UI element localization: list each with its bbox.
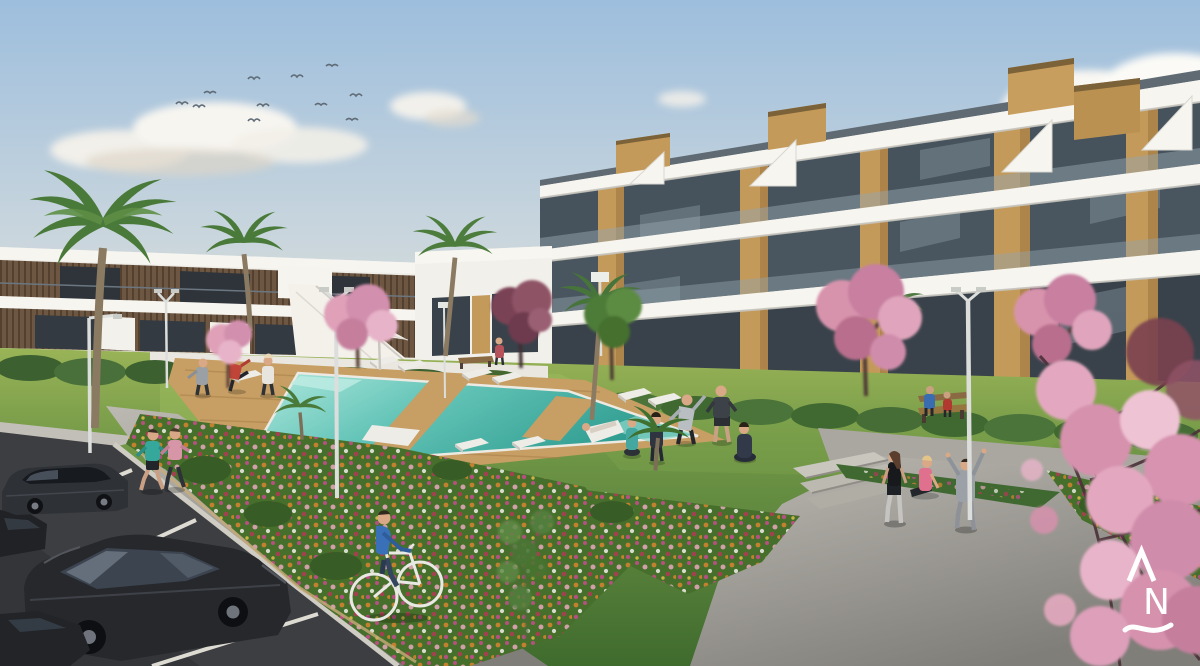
- cloud-tiny: [658, 91, 706, 107]
- logo-letter: N: [1143, 582, 1170, 623]
- render-image: N: [0, 0, 1200, 666]
- car-sedan: [2, 464, 128, 515]
